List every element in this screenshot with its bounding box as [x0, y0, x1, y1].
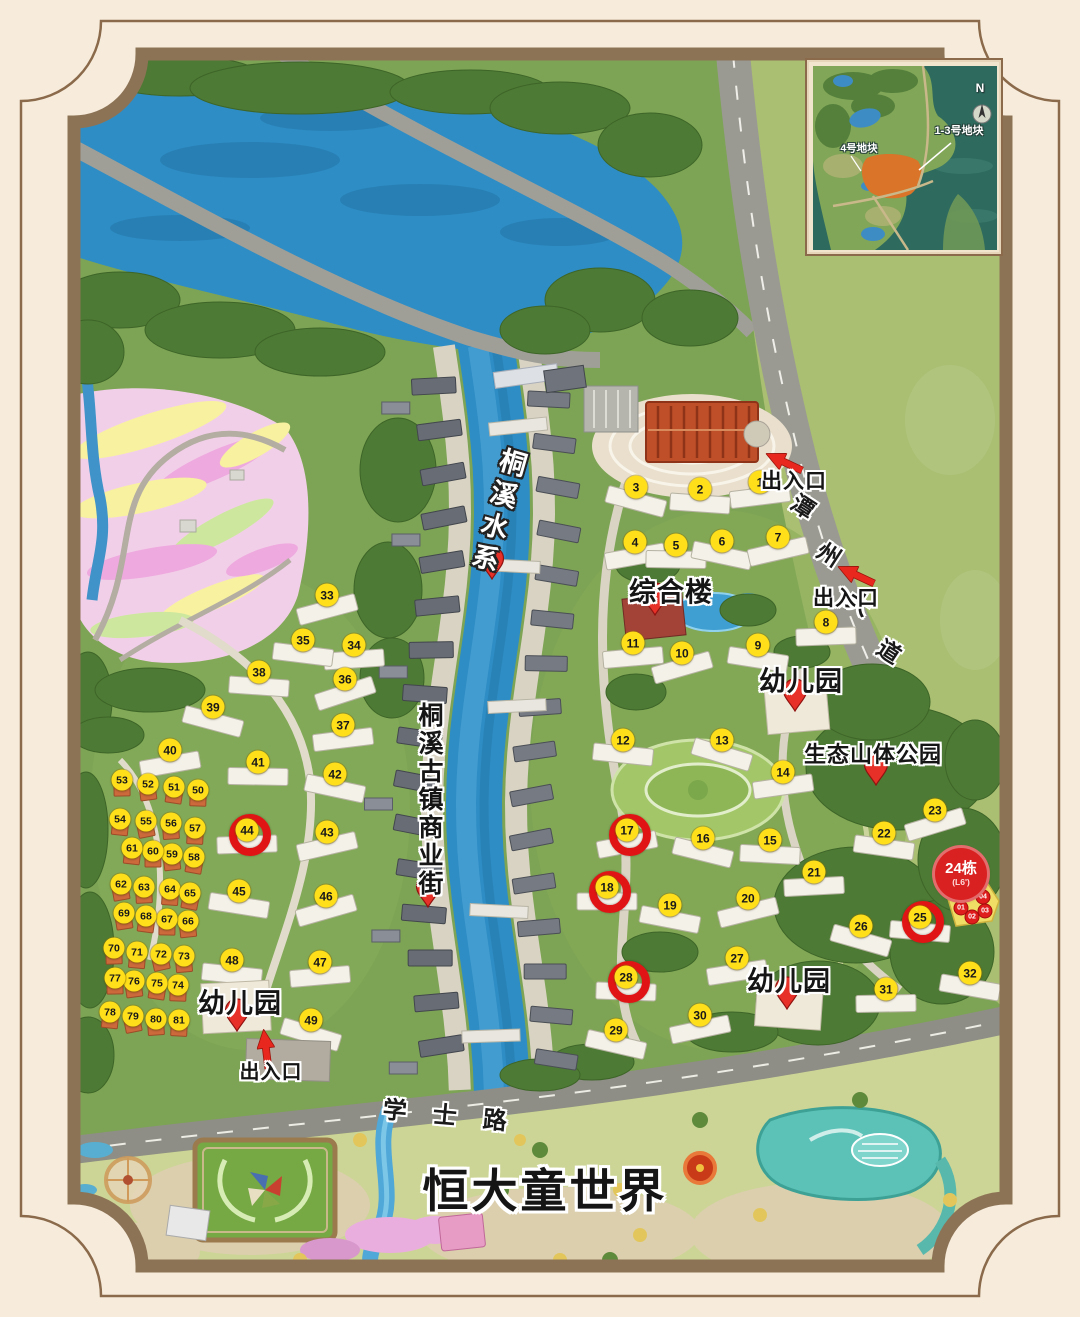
building-marker-21: 21 [803, 861, 826, 884]
building-marker-17: 17 [616, 819, 639, 842]
building-marker-77: 77 [105, 968, 126, 989]
building-marker-4: 4 [624, 531, 647, 554]
water-system-label: 桐溪水系 [460, 443, 534, 581]
building-marker-43: 43 [316, 821, 339, 844]
building-24-label: 24栋 [945, 861, 977, 877]
complex-building-label: 综合楼 [629, 571, 713, 610]
building-marker-36: 36 [334, 668, 357, 691]
building-marker-2: 2 [689, 478, 712, 501]
building-marker-28: 28 [615, 966, 638, 989]
theme-park-title: 恒大童世界 [423, 1155, 668, 1221]
building-marker-74: 74 [168, 975, 189, 996]
ancient-town-street-label: 桐溪古镇商业街 [411, 702, 447, 898]
north-label: N [976, 81, 985, 95]
building-marker-42: 42 [324, 763, 347, 786]
eco-mountain-park-label: 生态山体公园 [804, 737, 942, 769]
building-marker-70: 70 [104, 938, 125, 959]
building-marker-35: 35 [292, 629, 315, 652]
entrance-label-west: 出入口 [240, 1056, 303, 1085]
building-marker-33: 33 [316, 584, 339, 607]
building-marker-60: 60 [143, 841, 164, 862]
building-marker-27: 27 [726, 947, 749, 970]
building-marker-41: 41 [247, 751, 270, 774]
unit-dot-02: 02 [966, 911, 979, 924]
building-marker-73: 73 [174, 946, 195, 967]
building-marker-47: 47 [309, 951, 332, 974]
building-marker-14: 14 [772, 761, 795, 784]
building-marker-51: 51 [164, 777, 185, 798]
building-marker-67: 67 [157, 909, 178, 930]
building-marker-57: 57 [185, 818, 206, 839]
building-marker-72: 72 [151, 944, 172, 965]
building-marker-53: 53 [112, 770, 133, 791]
unit-dot-03: 03 [979, 905, 992, 918]
building-marker-40: 40 [159, 739, 182, 762]
building-marker-16: 16 [692, 827, 715, 850]
building-marker-10: 10 [671, 642, 694, 665]
building-marker-18: 18 [596, 876, 619, 899]
building-marker-66: 66 [178, 911, 199, 932]
building-marker-49: 49 [300, 1009, 323, 1032]
building-marker-50: 50 [188, 780, 209, 801]
building-marker-59: 59 [162, 844, 183, 865]
building-marker-19: 19 [659, 894, 682, 917]
building-marker-45: 45 [228, 880, 251, 903]
building-marker-76: 76 [124, 971, 145, 992]
building-marker-44: 44 [236, 819, 259, 842]
building-marker-22: 22 [873, 822, 896, 845]
entrance-label-top: 出入口 [761, 465, 827, 495]
inset-overview-map: 1-3号地块 4号地块 N [805, 58, 1003, 256]
building-marker-34: 34 [343, 634, 366, 657]
building-marker-39: 39 [202, 696, 225, 719]
building-marker-9: 9 [747, 634, 770, 657]
building-marker-7: 7 [767, 526, 790, 549]
building-marker-75: 75 [147, 973, 168, 994]
building-marker-64: 64 [160, 879, 181, 900]
building-marker-38: 38 [248, 661, 271, 684]
building-marker-6: 6 [711, 530, 734, 553]
building-marker-8: 8 [815, 611, 838, 634]
building-marker-55: 55 [136, 811, 157, 832]
xueshi-road-char-2: 士 [432, 1095, 459, 1132]
building-marker-80: 80 [146, 1009, 167, 1030]
building-marker-20: 20 [737, 887, 760, 910]
building-marker-61: 61 [122, 838, 143, 859]
inset-plot-4-label: 4号地块 [840, 141, 877, 156]
masterplan-page: 桐溪水系 综合楼 幼儿园 生态山体公园 幼儿园 幼儿园 桐溪古镇商业街 出入口 … [0, 0, 1080, 1317]
building-marker-68: 68 [136, 906, 157, 927]
building-marker-78: 78 [100, 1002, 121, 1023]
kindergarten-label-ne: 幼儿园 [759, 660, 843, 699]
building-marker-12: 12 [612, 729, 635, 752]
building-marker-48: 48 [221, 949, 244, 972]
building-marker-79: 79 [123, 1006, 144, 1027]
building-marker-5: 5 [665, 534, 688, 557]
building-marker-63: 63 [134, 877, 155, 898]
entrance-label-east: 出入口 [813, 582, 879, 612]
building-marker-81: 81 [169, 1010, 190, 1031]
building-marker-54: 54 [110, 809, 131, 830]
building-marker-58: 58 [184, 847, 205, 868]
building-marker-32: 32 [959, 962, 982, 985]
building-marker-31: 31 [875, 978, 898, 1001]
building-marker-71: 71 [127, 942, 148, 963]
kindergarten-label-west: 幼儿园 [198, 982, 282, 1021]
building-marker-29: 29 [605, 1019, 628, 1042]
building-marker-69: 69 [114, 903, 135, 924]
building-marker-37: 37 [332, 714, 355, 737]
xueshi-road-char-1: 学 [382, 1090, 409, 1127]
building-marker-52: 52 [138, 774, 159, 795]
building-marker-13: 13 [711, 729, 734, 752]
building-marker-25: 25 [909, 906, 932, 929]
building-marker-15: 15 [759, 829, 782, 852]
building-24-floor-label: (L6') [952, 877, 970, 887]
compass-icon [970, 96, 994, 126]
building-marker-26: 26 [850, 915, 873, 938]
building-24-badge: 24栋 (L6') [935, 848, 987, 900]
inset-terrain [813, 66, 997, 250]
building-marker-62: 62 [111, 874, 132, 895]
building-marker-65: 65 [180, 883, 201, 904]
building-marker-3: 3 [625, 476, 648, 499]
building-marker-23: 23 [924, 799, 947, 822]
building-marker-11: 11 [622, 632, 645, 655]
tanzhou-avenue-char-4: 道 [871, 629, 909, 670]
building-marker-46: 46 [315, 885, 338, 908]
building-marker-56: 56 [161, 813, 182, 834]
xueshi-road-char-3: 路 [482, 1100, 509, 1137]
kindergarten-label-se: 幼儿园 [747, 960, 831, 999]
building-marker-30: 30 [689, 1004, 712, 1027]
